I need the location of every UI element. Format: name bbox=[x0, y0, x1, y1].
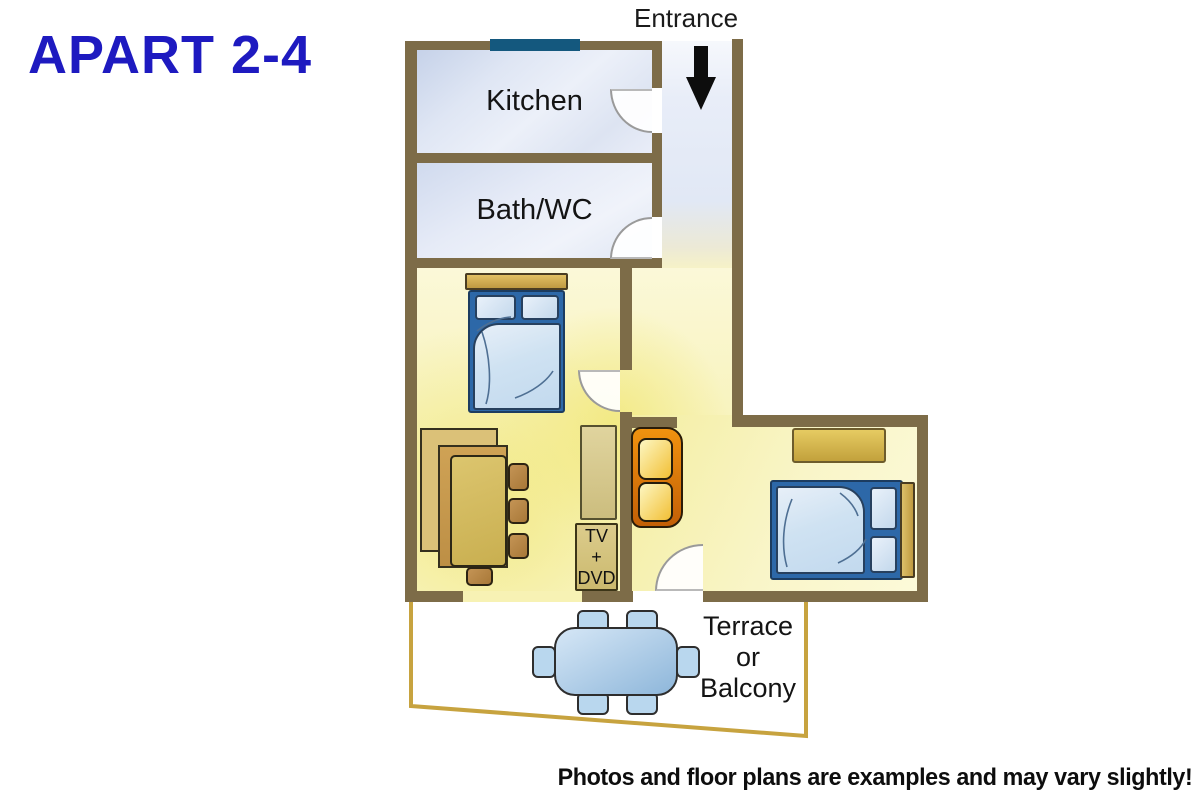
bath-label: Bath/WC bbox=[476, 194, 592, 227]
wall-hall-divider-upper bbox=[620, 268, 632, 370]
dining-table bbox=[450, 455, 507, 567]
bedroom-dresser bbox=[792, 428, 886, 463]
pillow bbox=[870, 487, 897, 530]
tv-line: TV bbox=[585, 526, 608, 547]
sofa-cushion bbox=[638, 482, 673, 522]
terrace-chair bbox=[578, 611, 608, 632]
dining-chair bbox=[508, 498, 529, 524]
terrace-label-line: Terrace bbox=[688, 611, 808, 642]
entrance-label: Entrance bbox=[634, 3, 738, 34]
pillow bbox=[521, 295, 559, 320]
bed-headboard bbox=[465, 273, 568, 290]
wall-bottom-left bbox=[405, 591, 463, 602]
wall-corridor-right bbox=[732, 39, 743, 417]
wall-left bbox=[405, 41, 417, 602]
terrace-table bbox=[555, 628, 677, 695]
wall-kitchen-right-lower bbox=[652, 133, 662, 163]
kitchen-label: Kitchen bbox=[486, 85, 583, 118]
tv-line: + bbox=[591, 547, 602, 568]
double-bed-1 bbox=[465, 273, 568, 413]
wall-bedroom-top bbox=[732, 415, 928, 427]
bed-headboard bbox=[900, 482, 915, 578]
tv-dvd-unit: TV + DVD bbox=[575, 523, 618, 591]
double-bed-2 bbox=[770, 480, 915, 580]
wall-bath-right-upper bbox=[652, 163, 662, 217]
wall-bath-bottom bbox=[405, 258, 662, 268]
patio-window-opening bbox=[463, 591, 582, 602]
wall-bottom-middle bbox=[582, 591, 633, 602]
pillow bbox=[475, 295, 516, 320]
dining-chair bbox=[508, 533, 529, 559]
floor-plan-page: Kitchen Bath/WC bbox=[0, 0, 1200, 800]
duvet bbox=[473, 323, 561, 410]
terrace-chair bbox=[578, 693, 608, 714]
disclaimer-text: Photos and floor plans are examples and … bbox=[557, 764, 1192, 792]
terrace-label-line: or bbox=[688, 642, 808, 673]
dining-chair bbox=[508, 463, 529, 491]
wall-bedroom-right bbox=[917, 415, 928, 602]
terrace-label: Terrace or Balcony bbox=[688, 611, 808, 704]
page-title: APART 2-4 bbox=[28, 24, 312, 86]
tv-line: DVD bbox=[577, 568, 615, 589]
pillow bbox=[870, 536, 897, 573]
duvet bbox=[776, 486, 865, 574]
terrace-dining-set bbox=[533, 611, 699, 714]
wall-bottom-right bbox=[703, 591, 928, 602]
terrace-chair bbox=[627, 611, 657, 632]
kitchen-window bbox=[490, 39, 580, 51]
wall-kitchen-bath-divider bbox=[405, 153, 662, 163]
entrance-corridor bbox=[662, 41, 732, 270]
sofa-cushion bbox=[638, 438, 673, 480]
dining-chair bbox=[466, 567, 493, 586]
terrace-chair bbox=[627, 693, 657, 714]
terrace-chair bbox=[533, 647, 555, 677]
wall-kitchen-right-upper bbox=[652, 50, 662, 88]
terrace-label-line: Balcony bbox=[688, 673, 808, 704]
cabinet bbox=[580, 425, 617, 520]
